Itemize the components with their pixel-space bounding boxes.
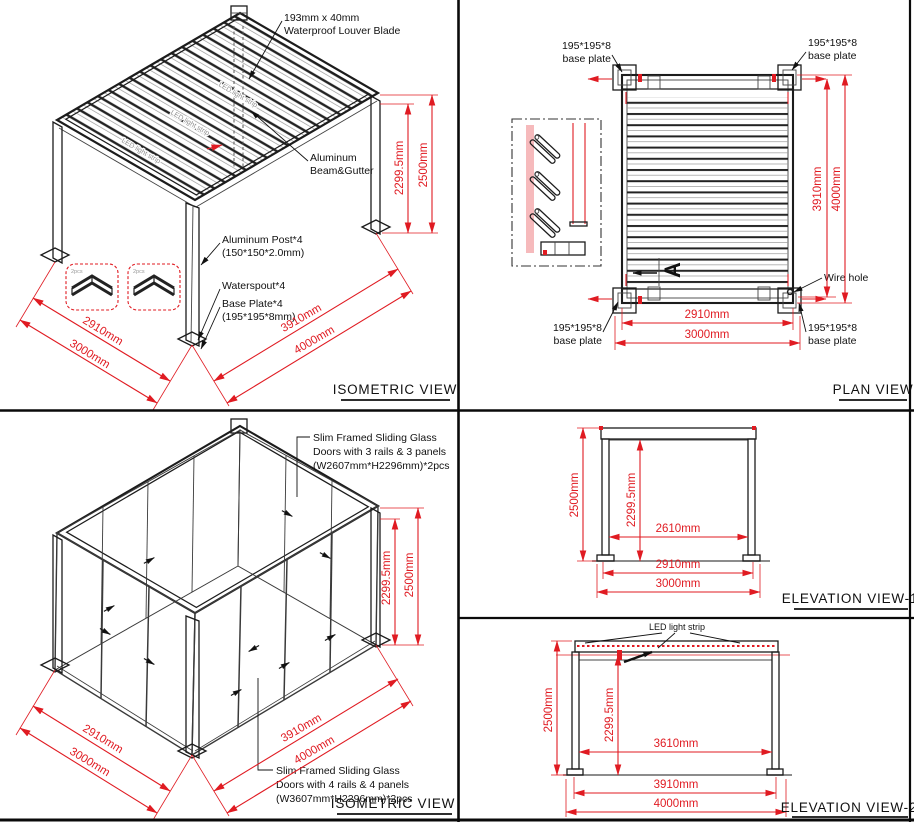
slide-direction-arrows: [100, 511, 335, 696]
base-plate: [567, 769, 583, 775]
baseplate-label-br: base plate: [808, 335, 857, 347]
bracket-qty-label: 2pcs: [133, 269, 145, 275]
aluminum-posts-bottom: [41, 508, 390, 758]
dim-4000: 4000mm: [831, 167, 843, 212]
baseplate-label-tl: base plate: [563, 53, 612, 65]
view-title: PLAN VIEW: [833, 382, 914, 397]
plan-louvers: [627, 97, 788, 286]
louver-blade-label: 193mm x 40mm: [284, 12, 360, 24]
isometric-view-top-panel: LED light strip LED light strip LED ligh…: [16, 6, 457, 410]
dim-2500: 2500mm: [418, 143, 430, 188]
plan-view-panel: A 195*195*8 base plate 195*195*8 base pl…: [512, 37, 913, 400]
louver-section-detail: [512, 119, 601, 266]
wire-hole-label: Wire hole: [824, 272, 869, 284]
dim-4000: 4000mm: [654, 798, 699, 810]
beam-gutter-label: Beam&Gutter: [310, 165, 374, 177]
dim-2299: 2299.5mm: [604, 688, 616, 742]
door-labels: Slim Framed Sliding Glass Doors with 3 r…: [258, 432, 450, 805]
elevation-view-1-panel: 2500mm 2299.5mm 2610mm 2910mm 3000mm ELE…: [569, 426, 914, 609]
section-arrow: [624, 652, 652, 662]
bracket-detail-boxes: 2pcs 2pcs: [66, 264, 180, 310]
dim-2500: 2500mm: [569, 473, 581, 518]
view-title: ISOMETRIC VIEW: [333, 382, 457, 397]
louvered-roof: [57, 13, 378, 207]
elev2-title: ELEVATION VIEW-2: [781, 800, 914, 817]
base-plate: [41, 248, 69, 262]
dim-3910: 3910mm: [654, 779, 699, 791]
beam-gutter-label: Aluminum: [310, 152, 357, 164]
plan-roof: [622, 75, 793, 303]
iso-top-title: ISOMETRIC VIEW: [333, 382, 457, 400]
post-label: (150*150*2.0mm): [222, 247, 304, 259]
dim-3910: 3910mm: [812, 167, 824, 212]
elev1-title: ELEVATION VIEW-1: [782, 591, 914, 609]
base-plate: [178, 332, 206, 346]
dim-2610: 2610mm: [656, 523, 701, 535]
baseplate-label-bl: base plate: [554, 335, 603, 347]
dim-2910: 2910mm: [685, 309, 730, 321]
louver-blade-label: Waterproof Louver Blade: [284, 25, 401, 37]
dim-3000: 3000mm: [67, 338, 111, 371]
baseplate-label-tl: 195*195*8: [562, 40, 611, 52]
iso-bottom-title: ISOMETRIC VIEW: [331, 796, 455, 814]
dim-3000: 3000mm: [656, 578, 701, 590]
dim-2299: 2299.5mm: [626, 473, 638, 527]
dim-3000: 3000mm: [685, 329, 730, 341]
baseplate-label-tr: 195*195*8: [808, 37, 857, 49]
base-plate: [743, 555, 760, 561]
led-strip-label: LED light strip: [649, 622, 705, 632]
elev1-structure: [592, 426, 770, 561]
doors-4panel-label: Doors with 4 rails & 4 panels: [276, 779, 409, 791]
glass-walls: [55, 430, 378, 755]
baseplate-label-bl: 195*195*8: [553, 322, 602, 334]
doors-3panel-label: Doors with 3 rails & 3 panels: [313, 446, 446, 458]
dim-2299: 2299.5mm: [394, 141, 406, 195]
dim-2910: 2910mm: [80, 315, 124, 348]
technical-drawing-sheet: LED light strip LED light strip LED ligh…: [0, 0, 914, 822]
drawing-canvas: LED light strip LED light strip LED ligh…: [0, 0, 914, 822]
dim-2910: 2910mm: [656, 559, 701, 571]
elev1-dimensions: 2500mm 2299.5mm 2610mm 2910mm 3000mm: [569, 428, 760, 598]
baseplate-label-br: 195*195*8: [808, 322, 857, 334]
base-plate: [767, 769, 783, 775]
elevation-view-2-panel: LED light strip 2500mm 2299.5mm 3610mm 3…: [543, 622, 914, 817]
dim-2500: 2500mm: [543, 688, 555, 733]
led-strip-band: [526, 125, 534, 253]
elev2-led-label: LED light strip: [585, 622, 740, 648]
waterspout-label: Waterspout*4: [222, 280, 285, 292]
view-title: ISOMETRIC VIEW: [331, 796, 455, 811]
baseplate-label-tr: base plate: [808, 50, 857, 62]
elev2-structure: [556, 641, 792, 775]
bracket-qty-label: 2pcs: [71, 269, 83, 275]
dim-2500: 2500mm: [404, 553, 416, 598]
view-title: ELEVATION VIEW-1: [782, 591, 914, 606]
dim-2299: 2299.5mm: [381, 551, 393, 605]
view-title: ELEVATION VIEW-2: [781, 800, 914, 815]
section-letter: A: [660, 262, 685, 278]
dim-3610: 3610mm: [654, 738, 699, 750]
doors-4panel-label: Slim Framed Sliding Glass: [276, 765, 400, 777]
doors-3panel-label: (W2607mm*H2296mm)*2pcs: [313, 460, 450, 472]
plan-title: PLAN VIEW: [833, 382, 914, 400]
post-label: Aluminum Post*4: [222, 234, 303, 246]
isometric-view-bottom-panel: Slim Framed Sliding Glass Doors with 3 r…: [16, 419, 455, 820]
base-plate: [597, 555, 614, 561]
doors-3panel-label: Slim Framed Sliding Glass: [313, 432, 437, 444]
baseplate-label: Base Plate*4: [222, 298, 283, 310]
